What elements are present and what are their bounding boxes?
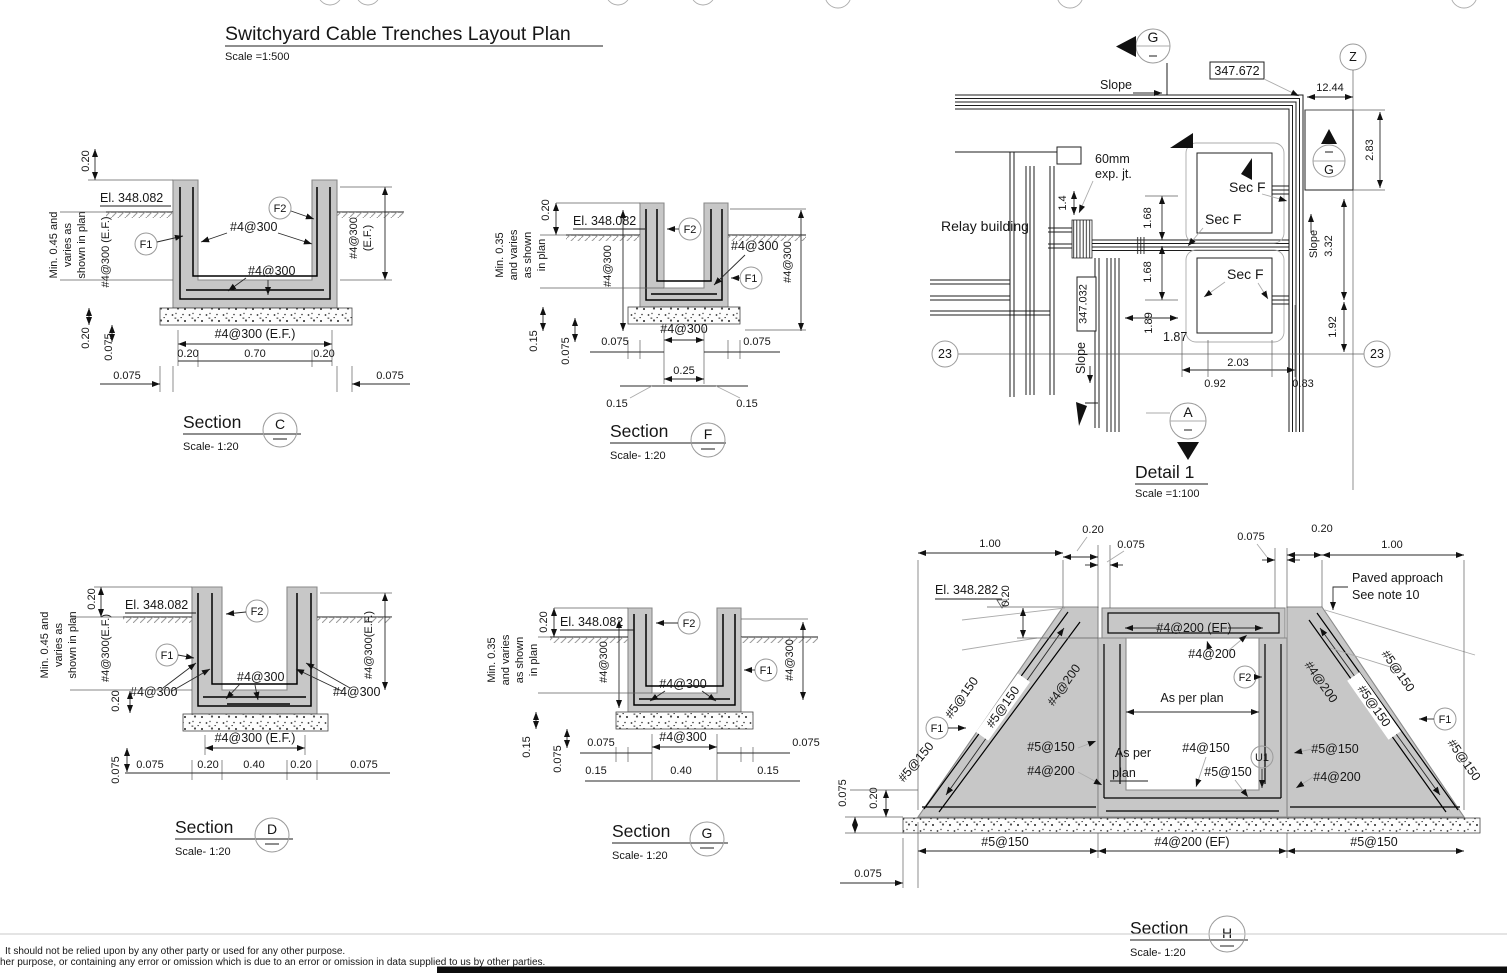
page-title: Switchyard Cable Trenches Layout Plan xyxy=(225,23,571,45)
rebar-label: #4@300 xyxy=(598,641,610,683)
mark-f1: F1 xyxy=(1439,714,1452,726)
dim-label: 0.20 xyxy=(868,787,880,808)
slope-label: Slope xyxy=(1100,78,1132,92)
rebar-label: #4@300(E.F.) xyxy=(363,611,375,679)
section-title: Section xyxy=(175,817,233,837)
section-title: Section xyxy=(1130,918,1188,938)
dim-label: 0.40 xyxy=(670,765,691,777)
dim-label: 1.68 xyxy=(1142,207,1154,228)
el-label: 347.672 xyxy=(1214,64,1259,78)
scale-label: Scale- 1:20 xyxy=(610,450,666,462)
mark-f1: F1 xyxy=(161,650,174,662)
note-label: 60mm xyxy=(1095,152,1130,166)
detail-title: Detail 1 xyxy=(1135,462,1194,482)
section-d: El. 348.082 F2 F1 #4@300 #4@300 #4@300 M… xyxy=(39,587,392,858)
dim-label: 0.15 xyxy=(606,398,627,410)
dim-label: 0.075 xyxy=(854,868,882,880)
note-label: in plan xyxy=(528,644,540,676)
rebar-label: #5@150 xyxy=(1204,765,1251,779)
dim-label: 0.92 xyxy=(1204,378,1225,390)
rebar-label: #4@300(E.F.) xyxy=(100,614,112,682)
dim-label: 0.20 xyxy=(110,690,122,711)
dim-label: 0.70 xyxy=(244,348,265,360)
rebar-label: #4@300 xyxy=(784,639,796,681)
rebar-label: #4@300 xyxy=(230,220,277,234)
dim-label: 0.15 xyxy=(521,736,533,757)
dim-label: 2.03 xyxy=(1227,357,1248,369)
mark-f1: F1 xyxy=(140,239,153,251)
note-label: Min. 0.35 xyxy=(486,637,498,682)
section-letter: C xyxy=(275,416,285,432)
note-label: varies as xyxy=(53,622,65,667)
dim-label: 0.075 xyxy=(552,745,564,773)
scale-label: Scale- 1:20 xyxy=(612,850,668,862)
section-letter: G xyxy=(702,825,713,841)
dim-label: 3.32 xyxy=(1323,235,1335,256)
mark-f2: F2 xyxy=(251,606,264,618)
el-label: El. 348.082 xyxy=(100,191,163,205)
mark-f2: F2 xyxy=(683,618,696,630)
dim-label: 0.15 xyxy=(757,765,778,777)
section-marker-letter: A xyxy=(1183,404,1193,420)
rebar-label: #4@300 xyxy=(248,264,295,278)
note-label: in plan xyxy=(536,239,548,271)
rebar-label: #4@300 (E.F.) xyxy=(215,327,296,341)
slope-label: Slope xyxy=(1074,342,1088,374)
note-label: plan xyxy=(1112,766,1136,780)
dim-label: 0.40 xyxy=(243,759,264,771)
rebar-label: #4@300 xyxy=(237,670,284,684)
rebar-label: #4@300 xyxy=(348,217,360,259)
dim-label: 0.075 xyxy=(601,336,629,348)
section-marker-letter: G xyxy=(1148,29,1159,45)
rebar-label: #4@300 xyxy=(130,685,177,699)
rebar-label: (E.F.) xyxy=(362,225,374,251)
note-label: and varies xyxy=(508,229,520,280)
dim-label: 0.075 xyxy=(350,759,378,771)
mark-u1: U1 xyxy=(1255,752,1269,764)
section-title: Section xyxy=(183,412,241,432)
dim-label: 0.83 xyxy=(1292,378,1313,390)
dim-label: 0.25 xyxy=(673,365,694,377)
note-label: Min. 0.45 and xyxy=(48,212,60,279)
detail-1-plan: 23 23 Z G Slope 347.672 12.44 G 2.83 Slo… xyxy=(930,29,1390,500)
dim-label: 0.075 xyxy=(136,759,164,771)
section-title: Section xyxy=(612,821,670,841)
dim-label: 0.075 xyxy=(587,737,615,749)
rebar-label: #4@300 xyxy=(602,245,614,287)
dim-label: 0.15 xyxy=(585,765,606,777)
note-label: shown in plan xyxy=(67,611,79,678)
rebar-label: #4@300 xyxy=(660,322,707,336)
dim-label: 0.20 xyxy=(1311,523,1332,535)
dim-label: 0.20 xyxy=(540,199,552,220)
el-label: El. 348.082 xyxy=(560,615,623,629)
rebar-label: #5@150 xyxy=(1027,740,1074,754)
rebar-label: #4@300 xyxy=(333,685,380,699)
section-letter: H xyxy=(1222,925,1232,941)
note-label: shown in plan xyxy=(76,211,88,278)
dim-label: 0.15 xyxy=(528,330,540,351)
scale-label: Scale- 1:20 xyxy=(183,441,239,453)
rebar-label: #5@150 xyxy=(1350,835,1397,849)
note-label: Min. 0.35 xyxy=(494,232,506,277)
section-letter: F xyxy=(704,426,713,442)
rebar-label: #4@300 (E.F.) xyxy=(100,216,112,287)
rebar-label: #4@300 xyxy=(731,239,778,253)
section-f: El. 348.082 F2 F1 #4@300 #4@300 #4@300 M… xyxy=(494,199,806,462)
grid-bubble: Z xyxy=(1349,50,1357,64)
dim-label: 0.075 xyxy=(837,779,849,807)
rebar-label: #4@200 xyxy=(1188,647,1235,661)
scale-label: Scale =1:100 xyxy=(1135,488,1200,500)
mark-f2: F2 xyxy=(1239,672,1252,684)
note-label: as shown xyxy=(514,637,526,683)
disclaimer-line: her purpose, or containing any error or … xyxy=(0,957,545,968)
el-label: El. 348.082 xyxy=(125,598,188,612)
rebar-label: #4@200 xyxy=(1313,770,1360,784)
dim-label: 2.83 xyxy=(1364,139,1376,160)
rebar-label: #5@150 xyxy=(1311,742,1358,756)
slope-label: Slope xyxy=(1308,230,1320,258)
title-block-bar xyxy=(437,967,1507,973)
rebar-label: #4@200 (EF) xyxy=(1154,835,1229,849)
grid-bubble: 23 xyxy=(938,347,952,361)
rebar-label: #5@150 xyxy=(942,674,981,721)
dim-label: 0.15 xyxy=(736,398,757,410)
dim-label: 0.20 xyxy=(1000,585,1012,606)
note-label: See note 10 xyxy=(1352,588,1419,602)
dim-label: 0.20 xyxy=(80,150,92,171)
section-h: 1.00 0.20 0.075 0.075 0.20 1.00 El. 348.… xyxy=(837,523,1483,959)
rebar-label: #4@300 (E.F.) xyxy=(215,731,296,745)
dim-label: 0.20 xyxy=(290,759,311,771)
mark-f1: F1 xyxy=(931,723,944,735)
mark-f1: F1 xyxy=(745,273,758,285)
dim-label: 0.20 xyxy=(538,611,550,632)
dim-label: 0.20 xyxy=(197,759,218,771)
dim-label: 0.075 xyxy=(560,337,572,365)
mark-f2: F2 xyxy=(684,224,697,236)
top-edge-remnants xyxy=(318,0,1477,8)
rebar-label: #5@150 xyxy=(1379,648,1418,695)
dim-label: 1.00 xyxy=(1381,539,1402,551)
dim-label: 1.68 xyxy=(1142,261,1154,282)
rebar-label: #5@150 xyxy=(895,739,936,784)
section-letter: D xyxy=(267,821,277,837)
rebar-label: #4@200 xyxy=(1027,764,1074,778)
dim-label: 1.87 xyxy=(1163,330,1187,344)
secf-label: Sec F xyxy=(1229,179,1266,195)
sheet-title: Switchyard Cable Trenches Layout Plan Sc… xyxy=(225,23,603,63)
dim-label: 0.075 xyxy=(1117,539,1145,551)
grid-bubble: 23 xyxy=(1370,347,1384,361)
dim-label: 0.075 xyxy=(376,370,404,382)
note-label: as shown xyxy=(522,232,534,278)
dim-label: 0.075 xyxy=(743,336,771,348)
section-c: El. 348.082 F1 F2 #4@300 #4@300 Min. 0.4… xyxy=(48,149,410,453)
note-label: As per xyxy=(1115,746,1151,760)
dim-label: 0.075 xyxy=(792,737,820,749)
page-title-scale: Scale =1:500 xyxy=(225,51,290,63)
mark-f2: F2 xyxy=(274,203,287,215)
dim-label: 1.00 xyxy=(979,538,1000,550)
note-label: As per plan xyxy=(1160,691,1223,705)
mark-f1: F1 xyxy=(760,665,773,677)
section-g: El. 348.082 F2 F1 #4@300 #4@300 #4@300 M… xyxy=(486,608,820,862)
dim-label: 0.20 xyxy=(86,588,98,609)
dim-label: 0.20 xyxy=(1082,524,1103,536)
dim-label: 1.92 xyxy=(1327,316,1339,337)
dim-label: 0.20 xyxy=(313,348,334,360)
secf-label: Sec F xyxy=(1227,266,1264,282)
scale-label: Scale- 1:20 xyxy=(175,846,231,858)
dim-label: 1.4 xyxy=(1057,195,1069,210)
scale-label: Scale- 1:20 xyxy=(1130,947,1186,959)
rebar-label: #4@300 xyxy=(659,730,706,744)
dim-label: 12.44 xyxy=(1316,82,1344,94)
secf-label: Sec F xyxy=(1205,211,1242,227)
dim-label: 1.89 xyxy=(1143,312,1155,333)
el-label: El. 348.282 xyxy=(935,583,998,597)
el-label: El. 348.082 xyxy=(573,214,636,228)
note-label: Min. 0.45 and xyxy=(39,612,51,679)
dim-label: 0.075 xyxy=(103,333,115,361)
note-label: exp. jt. xyxy=(1095,167,1132,181)
drawing-canvas: Switchyard Cable Trenches Layout Plan Sc… xyxy=(0,0,1507,973)
note-label: and varies xyxy=(500,634,512,685)
dim-label: 0.20 xyxy=(177,348,198,360)
rebar-label: #5@150 xyxy=(981,835,1028,849)
dim-label: 0.20 xyxy=(80,327,92,348)
dim-label: 0.075 xyxy=(1237,531,1265,543)
drawing-sheet: Switchyard Cable Trenches Layout Plan Sc… xyxy=(0,0,1507,973)
disclaimer-line: It should not be relied upon by any othe… xyxy=(5,946,345,957)
rebar-label: #4@300 xyxy=(659,677,706,691)
el-label: 347.032 xyxy=(1078,284,1090,324)
section-title: Section xyxy=(610,421,668,441)
dim-label: 0.075 xyxy=(110,756,122,784)
section-marker-letter: G xyxy=(1324,163,1334,177)
rebar-label: #4@200 (EF) xyxy=(1156,621,1231,635)
building-label: Relay building xyxy=(941,218,1029,234)
note-label: varies as xyxy=(62,222,74,267)
note-label: Paved approach xyxy=(1352,571,1443,585)
footer: It should not be relied upon by any othe… xyxy=(0,934,1507,973)
rebar-label: #4@300 xyxy=(782,241,794,283)
dim-label: 0.075 xyxy=(113,370,141,382)
rebar-label: #4@150 xyxy=(1182,741,1229,755)
